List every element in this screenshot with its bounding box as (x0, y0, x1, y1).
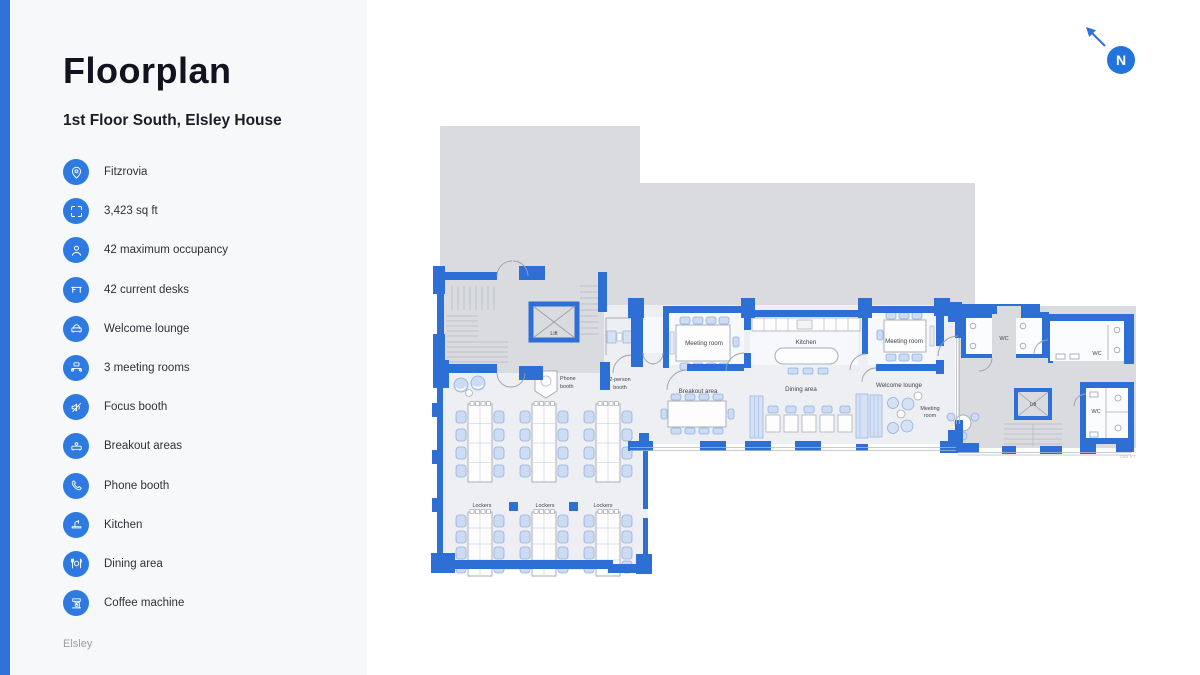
feature-meeting-rooms: 3 meeting rooms (63, 355, 228, 381)
floorplan-canvas: Lift Phone booth 2-person booth Meeting … (395, 110, 1165, 590)
feature-label: 42 maximum occupancy (104, 244, 228, 256)
feature-desks: 42 current desks (63, 277, 228, 303)
feature-phone-booth: Phone booth (63, 473, 228, 499)
feature-area: 3,423 sq ft (63, 198, 228, 224)
feature-list: Fitzrovia 3,423 sq ft 42 maximum occupan… (63, 159, 228, 629)
feature-label: Welcome lounge (104, 323, 189, 335)
muted-speaker-icon (63, 394, 89, 420)
feature-coffee: Coffee machine (63, 590, 228, 616)
label-wc-a: WC (999, 336, 1008, 342)
label-meeting-room-right: Meeting room (885, 338, 923, 345)
feature-label: Breakout areas (104, 440, 182, 452)
label-lockers-c: Lockers (594, 503, 613, 509)
page-title: Floorplan (63, 50, 232, 92)
feature-focus-booth: Focus booth (63, 394, 228, 420)
breakout-sofa-icon (63, 433, 89, 459)
person-icon (63, 237, 89, 263)
feature-dining: Dining area (63, 551, 228, 577)
desk-icon (63, 277, 89, 303)
label-wc-c: WC (1091, 409, 1100, 415)
coffee-machine-icon (63, 590, 89, 616)
label-dining-area: Dining area (785, 386, 817, 393)
kitchen-tap-icon (63, 512, 89, 538)
feature-label: Phone booth (104, 480, 169, 492)
phone-icon (63, 473, 89, 499)
label-lift-right: Lift (1030, 402, 1037, 408)
feature-label: Kitchen (104, 519, 142, 531)
label-breakout-area: Breakout area (679, 388, 718, 395)
label-phone-booth-1: Phone (560, 376, 576, 382)
feature-label: 3 meeting rooms (104, 362, 190, 374)
feature-label: 42 current desks (104, 284, 189, 296)
label-2person-booth-2: booth (613, 385, 627, 391)
feature-label: Dining area (104, 558, 163, 570)
label-lift-left: Lift (550, 331, 558, 337)
feature-welcome-lounge: Welcome lounge (63, 316, 228, 342)
label-2person-booth-1: 2-person (609, 377, 630, 383)
brand-footer: Elsley (63, 638, 92, 650)
label-lockers-a: Lockers (473, 503, 492, 509)
label-phone-booth-2: booth (560, 384, 574, 390)
label-meeting-room-small-1: Meeting (920, 406, 939, 412)
feature-label: Coffee machine (104, 597, 184, 609)
label-welcome-lounge: Welcome lounge (876, 382, 923, 389)
compass-label: N (1116, 52, 1126, 68)
feature-label: Fitzrovia (104, 166, 147, 178)
dining-icon (63, 551, 89, 577)
feature-breakout: Breakout areas (63, 433, 228, 459)
feature-label: 3,423 sq ft (104, 205, 158, 217)
label-meeting-room-left: Meeting room (685, 340, 723, 347)
feature-label: Focus booth (104, 401, 167, 413)
page-subtitle: 1st Floor South, Elsley House (63, 112, 282, 130)
label-meeting-room-small-2: room (924, 413, 937, 419)
accent-stripe (0, 0, 10, 675)
label-kitchen: Kitchen (796, 339, 817, 346)
sidebar: Floorplan 1st Floor South, Elsley House … (0, 0, 367, 675)
label-lockers-b: Lockers (536, 503, 555, 509)
area-brackets-icon (63, 198, 89, 224)
north-arrow-icon (1086, 27, 1105, 46)
location-pin-icon (63, 159, 89, 185)
north-compass: N (1075, 18, 1139, 78)
label-wc-b: WC (1092, 351, 1101, 357)
feature-occupancy: 42 maximum occupancy (63, 237, 228, 263)
lounge-sofa-icon (63, 316, 89, 342)
floorplan-page: { "accent": "#2e72d9", "sidebar": { "tit… (0, 0, 1200, 675)
feature-kitchen: Kitchen (63, 512, 228, 538)
feature-fitzrovia: Fitzrovia (63, 159, 228, 185)
label-plan-ref: DIS VT (1120, 454, 1136, 460)
meeting-table-icon (63, 355, 89, 381)
